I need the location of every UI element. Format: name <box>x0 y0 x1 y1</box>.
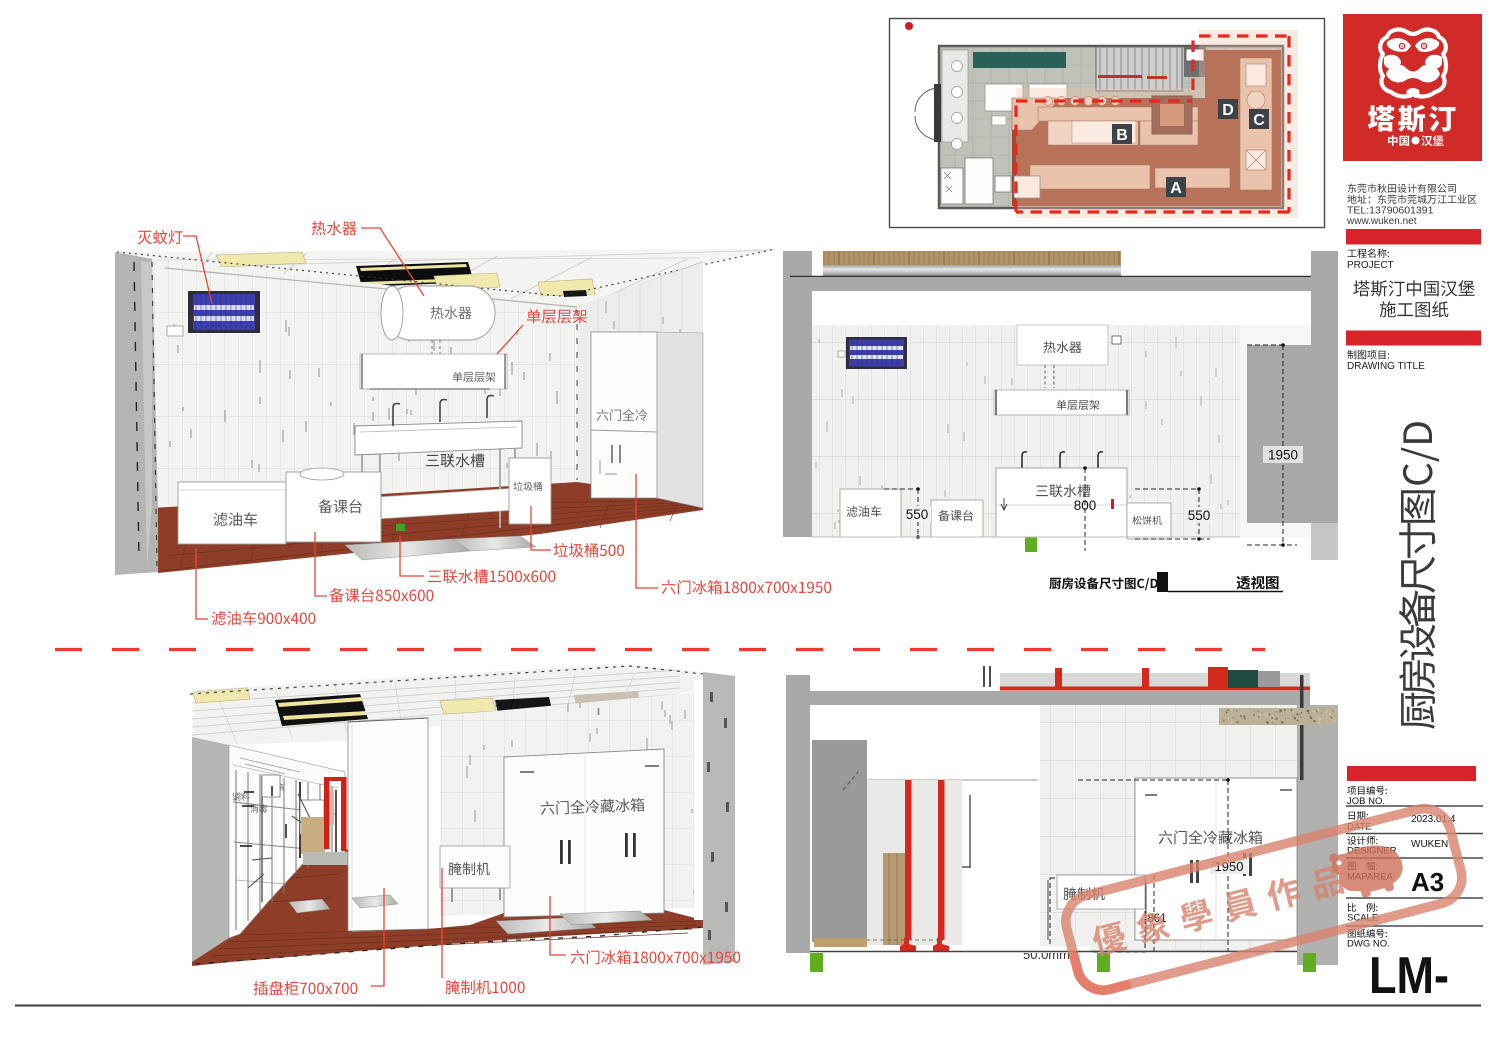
svg-text:A: A <box>1170 180 1182 197</box>
svg-text:800: 800 <box>1074 498 1097 513</box>
svg-text:C: C <box>1253 112 1265 129</box>
svg-text:DRAWING TITLE: DRAWING TITLE <box>1347 361 1425 372</box>
svg-text:WUKEN: WUKEN <box>1411 839 1448 850</box>
svg-text:550: 550 <box>1188 508 1211 523</box>
svg-text:550: 550 <box>906 507 929 522</box>
svg-text:www.wuken.net: www.wuken.net <box>1346 216 1417 227</box>
svg-text:1950: 1950 <box>1268 448 1298 463</box>
svg-text:B: B <box>1116 127 1128 144</box>
svg-text:D: D <box>1222 102 1234 119</box>
svg-text:JOB NO.: JOB NO. <box>1347 796 1385 807</box>
svg-text:TEL:13790601391: TEL:13790601391 <box>1347 205 1434 217</box>
svg-text:LM-: LM- <box>1369 947 1449 1005</box>
svg-text:PROJECT: PROJECT <box>1347 260 1394 271</box>
svg-text:A3: A3 <box>1411 867 1444 897</box>
